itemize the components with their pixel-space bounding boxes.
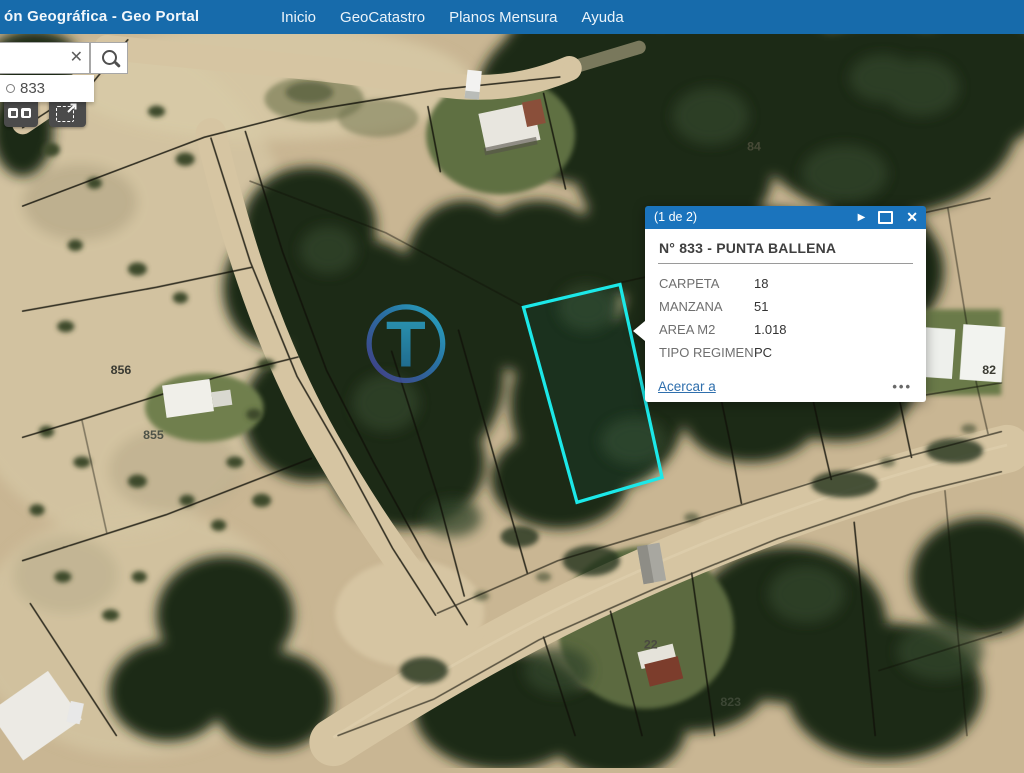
search-suggestion-item[interactable]: 833: [0, 75, 94, 102]
table-row: CARPETA 18: [659, 272, 787, 295]
field-value: PC: [754, 341, 787, 364]
basemap-tile-icon: [21, 108, 31, 118]
field-label: TIPO REGIMEN: [659, 341, 754, 364]
search-icon: [102, 50, 117, 65]
field-value: 51: [754, 295, 787, 318]
popup-maximize-icon[interactable]: [878, 211, 893, 224]
parcel-label-22: 22: [644, 638, 658, 652]
field-value: 18: [754, 272, 787, 295]
app-title: ón Geográfica - Geo Portal: [4, 0, 199, 34]
field-value: 1.018: [754, 318, 787, 341]
extent-arrow-icon: [65, 101, 79, 115]
popup-header[interactable]: (1 de 2) ▶ ✕: [645, 206, 926, 229]
more-options-icon[interactable]: •••: [892, 379, 912, 394]
popup-close-icon[interactable]: ✕: [906, 206, 918, 229]
field-label: AREA M2: [659, 318, 754, 341]
table-row: AREA M2 1.018: [659, 318, 787, 341]
field-label: MANZANA: [659, 295, 754, 318]
table-row: MANZANA 51: [659, 295, 787, 318]
zoom-to-link[interactable]: Acercar a: [658, 379, 716, 394]
parcel-label-856: 856: [111, 363, 132, 377]
search-input[interactable]: ✕: [0, 42, 90, 74]
popup-body: N° 833 - PUNTA BALLENA CARPETA 18 MANZAN…: [645, 229, 926, 402]
suggestion-bullet-icon: [6, 84, 15, 93]
attributes-table: CARPETA 18 MANZANA 51 AREA M2 1.018 TIPO…: [659, 272, 787, 364]
suggestion-text: 833: [20, 80, 45, 97]
top-navigation-bar: ón Geográfica - Geo Portal Inicio GeoCat…: [0, 0, 1024, 34]
nav-item-geocatastro[interactable]: GeoCatastro: [340, 9, 425, 26]
clear-search-icon[interactable]: ✕: [70, 48, 83, 68]
popup-callout-tail: [633, 321, 645, 341]
popup-pagination: (1 de 2): [654, 206, 697, 229]
main-nav: Inicio GeoCatastro Planos Mensura Ayuda: [281, 0, 624, 34]
field-label: CARPETA: [659, 272, 754, 295]
truck: [465, 70, 482, 100]
basemap-tile-icon: [8, 108, 18, 118]
parcel-info-popup: (1 de 2) ▶ ✕ N° 833 - PUNTA BALLENA CARP…: [645, 206, 926, 402]
parcel-label-823: 823: [720, 695, 741, 709]
basemap-toggle-button[interactable]: [4, 98, 38, 127]
popup-next-icon[interactable]: ▶: [858, 206, 866, 229]
parcel-label-84: 84: [747, 140, 761, 154]
search-button[interactable]: [90, 42, 128, 74]
parcel-label-855: 855: [143, 428, 164, 442]
watermark-letter: T: [386, 308, 426, 381]
nav-item-inicio[interactable]: Inicio: [281, 9, 316, 26]
table-row: TIPO REGIMEN PC: [659, 341, 787, 364]
parcel-label-82: 82: [982, 363, 996, 377]
popup-divider: [658, 263, 913, 264]
popup-title: N° 833 - PUNTA BALLENA: [645, 229, 926, 263]
nav-item-ayuda[interactable]: Ayuda: [581, 9, 623, 26]
nav-item-planos-mensura[interactable]: Planos Mensura: [449, 9, 557, 26]
